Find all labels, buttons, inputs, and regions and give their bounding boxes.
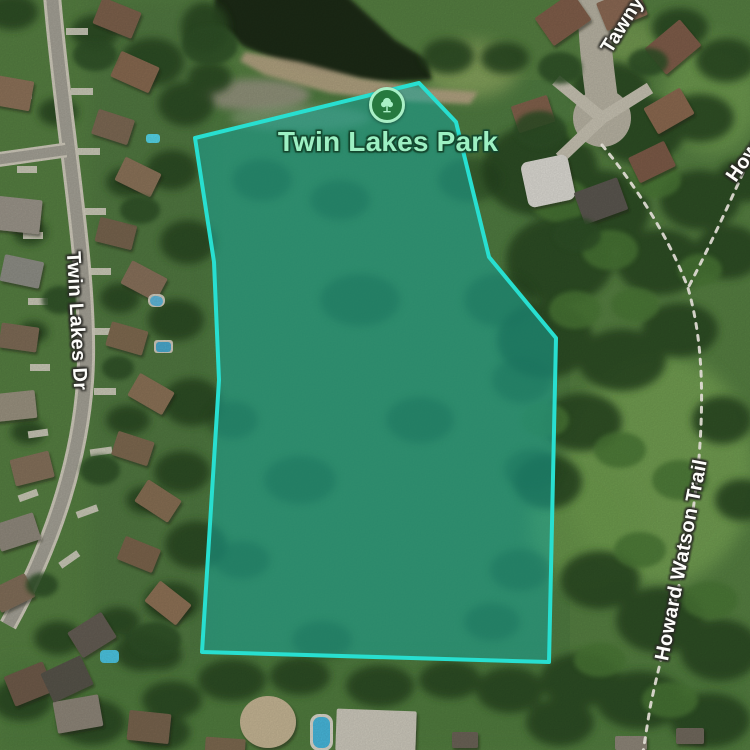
tree-icon [377, 95, 397, 115]
park-marker[interactable] [369, 87, 405, 123]
map-view[interactable]: Twin Lakes Park Twin Lakes Dr Tawny Howa… [0, 0, 750, 750]
